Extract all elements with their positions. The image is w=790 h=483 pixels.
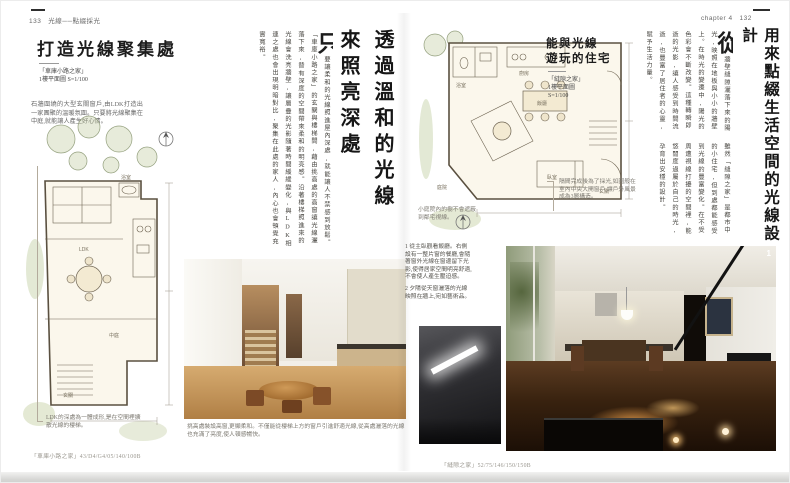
right-plan-name: 「縫隙之家」 bbox=[548, 76, 584, 84]
left-note-connector-v bbox=[37, 166, 38, 422]
right-para1-text: 牆壁縫隙灑落下來的陽光,映照在地板與小小的牆壁上。在時光的變遷中,陽光的色彩會不… bbox=[647, 31, 730, 132]
section-title-line2: 遊玩的住宅 bbox=[546, 52, 611, 67]
left-plan-note: LDK的深處為一體成形,是在空間裡擴散光線的樓梯。 bbox=[46, 415, 146, 430]
photo-framed-picture bbox=[705, 297, 733, 336]
photo-stairs bbox=[245, 330, 275, 368]
photo-round-table bbox=[259, 381, 319, 400]
plan-label-dining: 飯廳 bbox=[537, 100, 547, 107]
right-paragraph-1: 從牆壁縫隙灑落下來的陽光,映照在地板與小小的牆壁上。在時光的變遷中,陽光的色彩會… bbox=[647, 31, 733, 137]
right-interior-photo: 1 bbox=[506, 246, 776, 451]
right-plan-scale-2: S=1/100 bbox=[548, 92, 584, 100]
center-body-text: 要讓柔和的光線照進屋內深處,就能讓人不禁感到放鬆。「車庫小路之家」的玄關與樓梯間… bbox=[258, 31, 330, 248]
photo-chair-2 bbox=[313, 387, 331, 405]
right-paragraph-2: 雖然「縫隙之家」是都市中的小住宅,但到處都能感受到光線的豐富變化。在不受周遭視線… bbox=[647, 143, 733, 237]
section-title-line1: 能與光線 bbox=[546, 37, 611, 52]
plan-label-courtyard: 中庭 bbox=[109, 332, 119, 339]
wall-light-photo bbox=[419, 326, 501, 444]
header-left-dash bbox=[31, 9, 45, 11]
left-interior-photo bbox=[184, 259, 406, 419]
photo-pendant-cord bbox=[626, 287, 627, 312]
light-streak bbox=[430, 345, 478, 374]
left-plan-label: 「車庫小路之家」 1樓平面圖 S=1/100 bbox=[39, 68, 88, 84]
plan-label-bath: 浴室 bbox=[456, 82, 466, 89]
photo-chair-right bbox=[649, 346, 663, 371]
photo-glow-spot-2 bbox=[722, 428, 729, 435]
right-plan-note: 隔間完成後為了採光,如圖般在室內中央大開窗戶,讓戶外風景成為3層構造。 bbox=[559, 179, 639, 202]
photo-hall-opening bbox=[286, 294, 302, 358]
right-plan-note-left: 小庭院內的樹不會遮蔽到鄰宅視線。 bbox=[418, 207, 480, 222]
left-running-title: 光線──點綴採光 bbox=[48, 18, 100, 25]
left-page-title: 打造光線聚集處 bbox=[37, 35, 177, 60]
right-note-connector-h bbox=[547, 181, 554, 182]
plan-label-bath: 浴室 bbox=[121, 174, 131, 181]
left-floor-plan: LDK 玄關 中庭 浴室 bbox=[23, 109, 181, 449]
photo-chair-1 bbox=[246, 390, 264, 406]
right-title-dash bbox=[548, 71, 566, 72]
photo-chair-3 bbox=[282, 400, 302, 413]
left-title-dash bbox=[39, 63, 59, 64]
right-plan-label: 「縫隙之家」 1樓平面圖 S=1/100 bbox=[548, 76, 584, 100]
plan-label-ldk: LDK bbox=[79, 247, 89, 253]
photo-range-hood bbox=[595, 293, 617, 316]
center-title-line2: 來照亮深處 bbox=[331, 29, 365, 255]
right-main-title: 用來點綴生活空間的光線設計 bbox=[737, 27, 781, 249]
right-page-number: 132 bbox=[740, 15, 752, 22]
right-section-title: 能與光線 遊玩的住宅 bbox=[546, 37, 611, 66]
header-right-dash bbox=[753, 9, 770, 11]
photo-stair-opening bbox=[242, 285, 280, 368]
caption-2: 2 夕陽從天窗灑落的光線映照在牆上,宛如藝術品。 bbox=[405, 286, 473, 301]
left-footnote: 「車庫小路之家」43/D4/G4/05/140/100B bbox=[31, 451, 141, 460]
page-gutter bbox=[397, 13, 411, 471]
plan-trees bbox=[47, 116, 157, 173]
right-captions: 1 從主臥觀看飯廳。右側設有一整片窗的餐廳,會隨著窗外光線在窗邊留下光影,使得居… bbox=[405, 244, 473, 301]
photo-pendant-lamp bbox=[621, 310, 633, 320]
header-left: 133 光線──點綴採光 bbox=[29, 15, 101, 25]
left-photo-caption: 挑高處裝設高窗,更顯柔和。不僅能從樓梯上方的窗戶引進舒適光線,從高處灑落的光線也… bbox=[187, 424, 405, 439]
photo-dining-table bbox=[582, 340, 647, 361]
book-spread: 133 光線──點綴採光 chapter 4 132 打造光線聚集處 「車庫小路… bbox=[0, 0, 790, 483]
header-right: chapter 4 132 bbox=[701, 15, 752, 22]
caption-1: 1 從主臥觀看飯廳。右側設有一整片窗的餐廳,會隨著窗外光線在窗邊留下光影,使得居… bbox=[405, 244, 473, 282]
center-title: 透過溫和的光線 來照亮深處 bbox=[331, 29, 399, 255]
photo-chair-left bbox=[571, 346, 585, 371]
left-plan-scale: 1樓平面圖 S=1/100 bbox=[39, 76, 88, 84]
chapter-label: chapter 4 bbox=[701, 15, 733, 22]
compass-icon bbox=[159, 132, 173, 146]
right-footnote: 「縫隙之家」52/75/146/150/150B bbox=[441, 460, 531, 469]
center-title-line1: 透過溫和的光線 bbox=[365, 29, 399, 255]
photo-light-reflection-2 bbox=[646, 398, 700, 419]
plan-label-garden: 庭院 bbox=[437, 184, 447, 191]
right-plan-scale-1: 1樓平面圖 bbox=[548, 84, 584, 92]
left-note-connector-h bbox=[37, 421, 43, 422]
center-body-paragraph: 只要讓柔和的光線照進屋內深處,就能讓人不禁感到放鬆。「車庫小路之家」的玄關與樓梯… bbox=[201, 31, 333, 249]
plan-outline bbox=[45, 181, 157, 405]
plan-dining-table bbox=[76, 266, 102, 292]
plan-label-kitchen: 廚房 bbox=[519, 70, 529, 77]
photo-number-badge: 1 bbox=[767, 249, 771, 258]
left-page-number: 133 bbox=[29, 18, 41, 25]
left-plan-name: 「車庫小路之家」 bbox=[39, 68, 88, 76]
plan-label-genkan: 玄關 bbox=[63, 392, 73, 399]
plan-label-bedroom: 臥室 bbox=[547, 174, 557, 181]
bottom-scan-edge bbox=[1, 472, 790, 483]
photo-floor-shadow bbox=[419, 418, 501, 444]
right-note-connector-v bbox=[553, 181, 554, 211]
photo-sunken-pit bbox=[544, 418, 663, 451]
